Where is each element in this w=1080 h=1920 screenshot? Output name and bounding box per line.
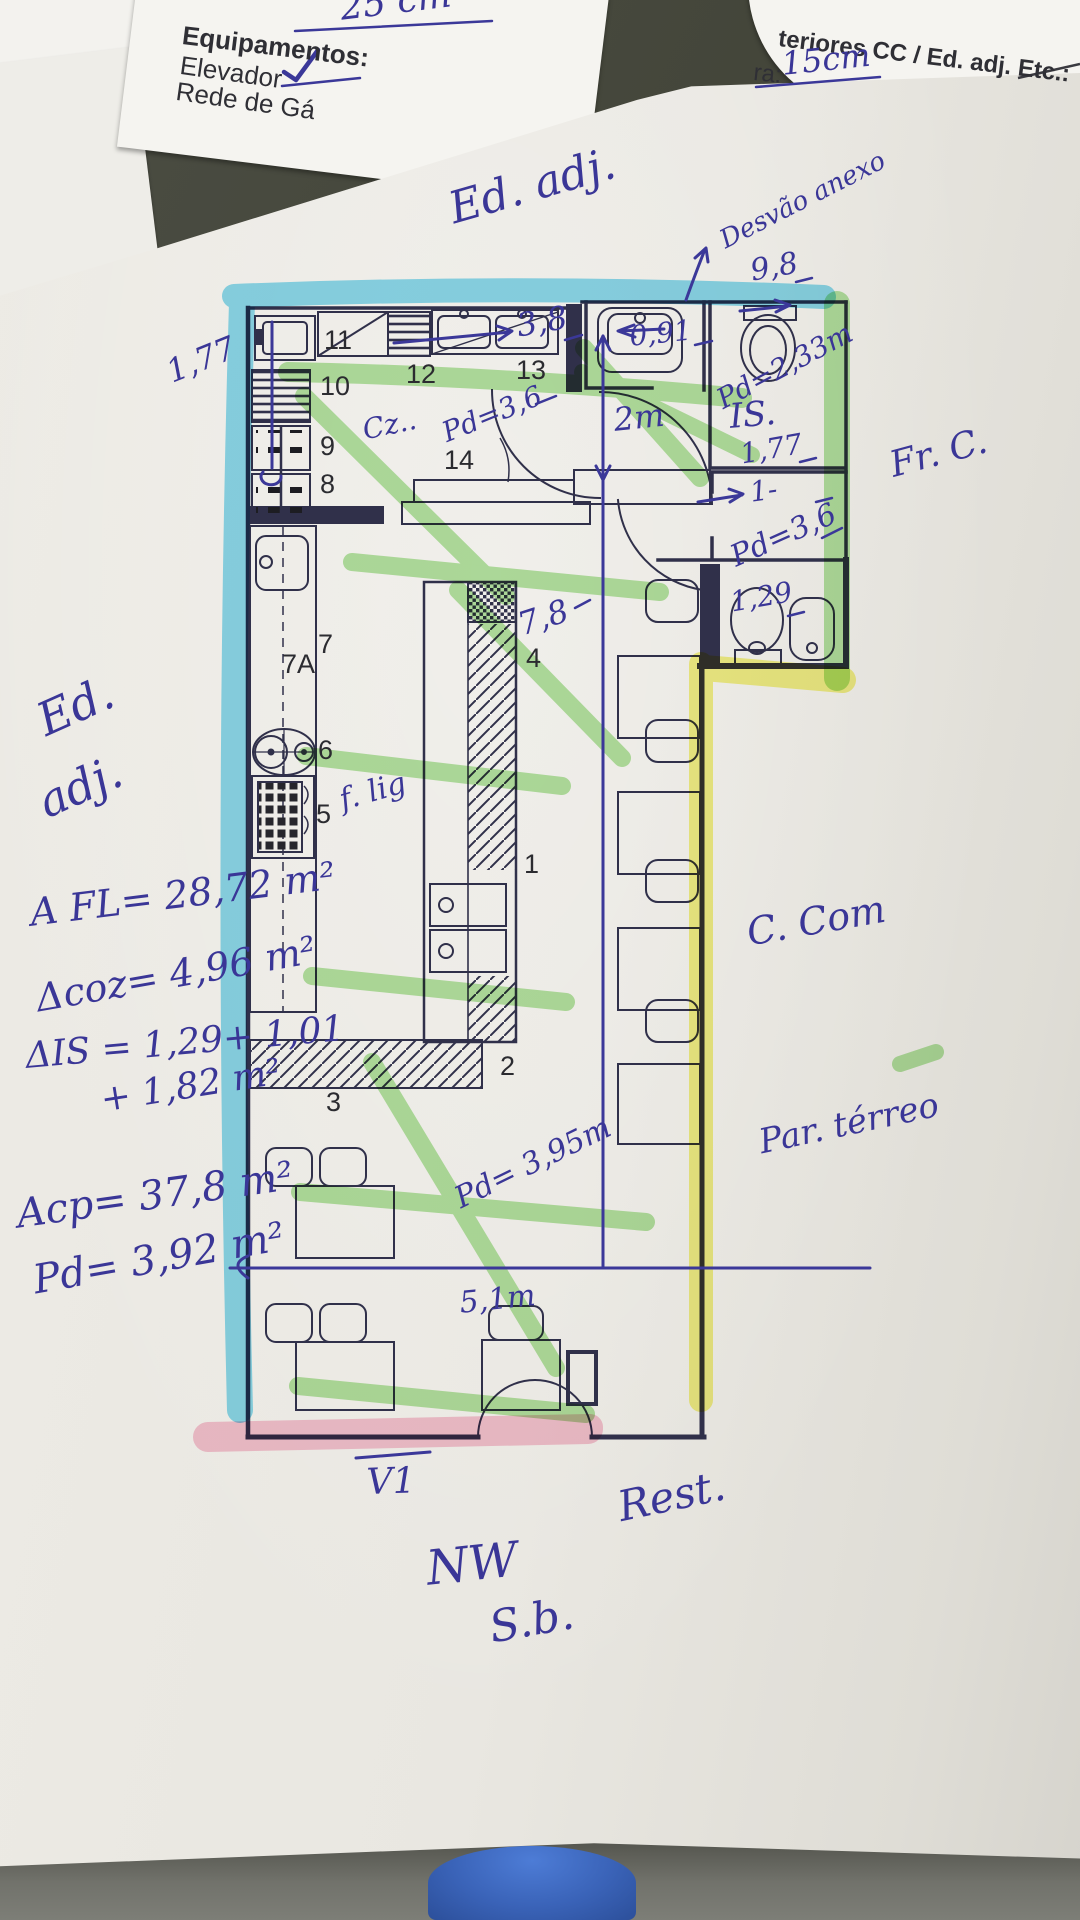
annotation-v1: V1 <box>366 1462 416 1501</box>
printed-ra-label: ra: <box>752 60 782 88</box>
annotation-5-1m: 5,1m <box>458 1280 537 1319</box>
room-number-10: 10 <box>320 372 350 400</box>
room-number-5: 5 <box>316 800 331 828</box>
room-number-2: 2 <box>500 1052 515 1080</box>
room-number-13: 13 <box>516 356 546 384</box>
annotation-0-91: 0,91 <box>628 315 693 351</box>
annotation-2m: 2m <box>612 399 666 438</box>
room-number-1: 1 <box>524 850 539 878</box>
room-number-12: 12 <box>406 360 436 388</box>
room-number-7: 7 <box>318 630 333 658</box>
room-number-9: 9 <box>320 432 335 460</box>
room-number-7a: 7A <box>282 650 315 678</box>
annotation-3-8: 3,8 <box>514 301 570 343</box>
room-number-4: 4 <box>526 644 541 672</box>
annotation-is: IS. <box>728 396 777 436</box>
annotation-1-dash: 1- <box>748 474 779 507</box>
photo-of-annotated-floor-plan: Equipamentos: Elevador Rede de Gá terior… <box>0 0 1080 1920</box>
annotation-9-8: 9,8 <box>748 248 800 287</box>
room-number-3: 3 <box>326 1088 341 1116</box>
highlighter-yellow <box>701 664 843 1400</box>
room-number-14: 14 <box>444 446 474 474</box>
room-number-6: 6 <box>318 736 333 764</box>
highlighter-pink <box>208 1427 590 1437</box>
room-number-11: 11 <box>324 326 352 354</box>
room-number-8: 8 <box>320 470 335 498</box>
annotation-nw: NW <box>424 1534 520 1594</box>
